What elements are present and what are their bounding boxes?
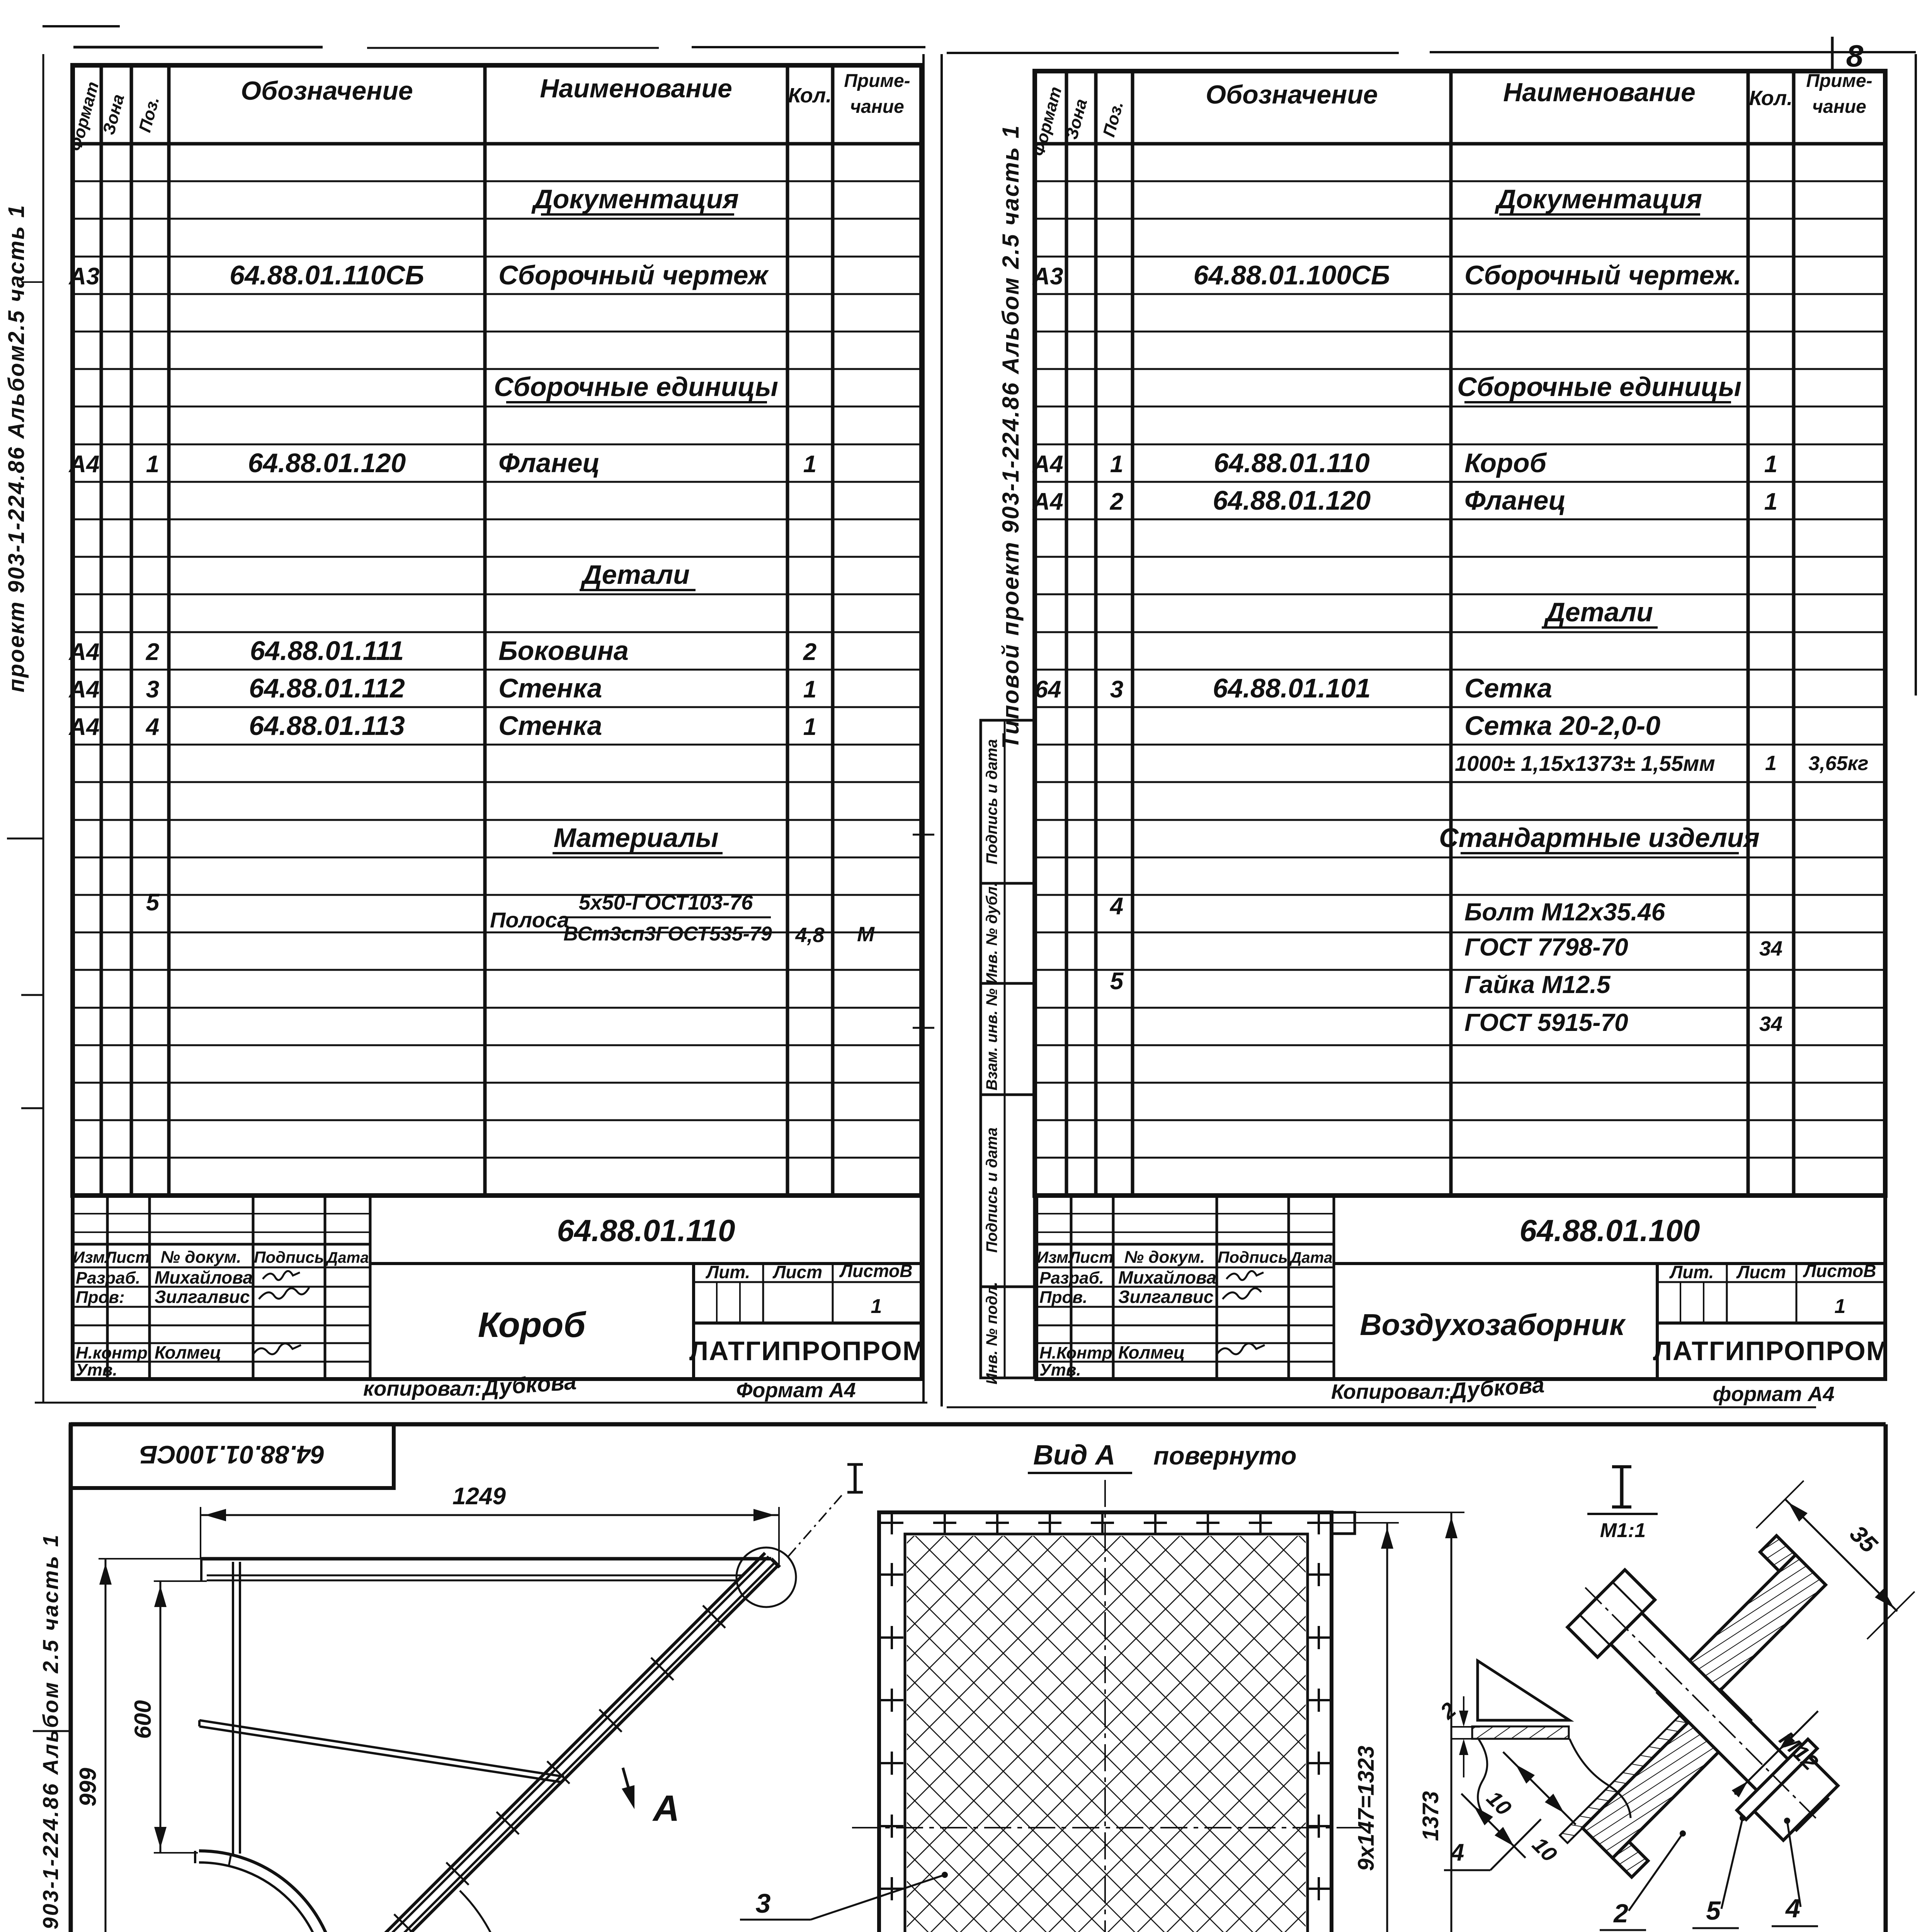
svg-text:Дата: Дата bbox=[326, 1249, 369, 1266]
svg-text:А3: А3 bbox=[1032, 263, 1063, 290]
svg-text:1: 1 bbox=[803, 451, 816, 478]
svg-text:600: 600 bbox=[130, 1700, 156, 1739]
svg-text:1249: 1249 bbox=[452, 1483, 506, 1510]
svg-text:повернуто: повернуто bbox=[1153, 1441, 1297, 1470]
svg-text:Детали: Детали bbox=[1544, 597, 1653, 627]
svg-text:Стенка: Стенка bbox=[498, 673, 602, 703]
svg-text:10: 10 bbox=[1527, 1832, 1562, 1867]
svg-text:Утв.: Утв. bbox=[76, 1361, 117, 1379]
svg-text:Сборочный чертеж: Сборочный чертеж bbox=[498, 260, 769, 290]
svg-text:1: 1 bbox=[871, 1295, 882, 1318]
svg-text:Детали: Детали bbox=[580, 560, 690, 590]
svg-text:64: 64 bbox=[1035, 676, 1061, 703]
svg-text:Сетка 20-2,0-0: Сетка 20-2,0-0 bbox=[1464, 711, 1660, 741]
svg-text:А4: А4 bbox=[1032, 451, 1063, 478]
svg-text:Сборочные единицы: Сборочные единицы bbox=[494, 372, 778, 402]
svg-text:2: 2 bbox=[803, 639, 816, 665]
svg-text:Дубкова: Дубкова bbox=[1447, 1372, 1545, 1404]
svg-text:Фланец: Фланец bbox=[498, 448, 600, 478]
svg-text:64.88.01.100СБ: 64.88.01.100СБ bbox=[139, 1440, 325, 1469]
svg-text:Михайлова: Михайлова bbox=[155, 1267, 253, 1287]
svg-text:А4: А4 bbox=[68, 714, 99, 740]
svg-text:Н.контр: Н.контр bbox=[76, 1344, 148, 1362]
svg-text:9х147=1323: 9х147=1323 bbox=[1354, 1746, 1379, 1871]
svg-text:А3: А3 bbox=[68, 263, 99, 290]
svg-text:Дата: Дата bbox=[1289, 1249, 1333, 1266]
svg-text:Фланец: Фланец bbox=[1464, 485, 1566, 515]
svg-text:64.88.01.100СБ: 64.88.01.100СБ bbox=[1194, 260, 1390, 290]
svg-text:Пров:: Пров: bbox=[76, 1288, 125, 1307]
svg-text:Кол.: Кол. bbox=[788, 84, 832, 107]
svg-text:Взам. инв. №: Взам. инв. № bbox=[983, 988, 1000, 1090]
svg-text:ЛистоВ: ЛистоВ bbox=[839, 1261, 913, 1281]
svg-text:ГОСТ 5915-70: ГОСТ 5915-70 bbox=[1464, 1009, 1628, 1036]
svg-text:Приме-: Приме- bbox=[1806, 71, 1872, 91]
svg-text:Н.Контр: Н.Контр bbox=[1039, 1344, 1112, 1362]
svg-text:Инв. № подл.: Инв. № подл. bbox=[983, 1282, 1000, 1384]
svg-text:1: 1 bbox=[1835, 1295, 1846, 1318]
svg-text:Лит.: Лит. bbox=[706, 1262, 750, 1282]
svg-text:5: 5 bbox=[1706, 1896, 1721, 1925]
svg-text:Стенка: Стенка bbox=[498, 711, 602, 741]
svg-text:Документация: Документация bbox=[531, 184, 739, 214]
svg-text:1373: 1373 bbox=[1418, 1791, 1443, 1841]
svg-text:1: 1 bbox=[1765, 752, 1777, 775]
svg-text:Типовой проект 903-1-224.86: Типовой проект 903-1-224.86 Альбом 2.5 ч… bbox=[38, 1533, 63, 1932]
svg-text:Разраб.: Разраб. bbox=[1039, 1269, 1104, 1287]
svg-text:2: 2 bbox=[1110, 488, 1123, 515]
svg-text:3,65кг: 3,65кг bbox=[1808, 752, 1868, 775]
svg-text:4: 4 bbox=[1785, 1894, 1800, 1923]
svg-text:35: 35 bbox=[1845, 1520, 1883, 1559]
svg-text:Приме-: Приме- bbox=[844, 71, 910, 91]
svg-text:А4: А4 bbox=[68, 676, 99, 703]
svg-text:64.88.01.120: 64.88.01.120 bbox=[248, 448, 406, 478]
svg-text:А4: А4 bbox=[1032, 488, 1063, 515]
svg-text:64.88.01.110: 64.88.01.110 bbox=[557, 1213, 735, 1248]
svg-text:Зилгалвис: Зилгалвис bbox=[1118, 1287, 1213, 1307]
svg-text:5: 5 bbox=[146, 889, 160, 916]
svg-text:Зона: Зона bbox=[99, 92, 128, 137]
svg-text:2: 2 bbox=[1435, 1697, 1461, 1724]
svg-text:Типовой проект 903-1-224.86 А: Типовой проект 903-1-224.86 Альбом 2.5 ч… bbox=[998, 124, 1024, 749]
svg-text:Лит.: Лит. bbox=[1669, 1262, 1714, 1282]
svg-text:Подпись: Подпись bbox=[254, 1248, 324, 1266]
svg-text:64.88.01.113: 64.88.01.113 bbox=[249, 711, 405, 741]
svg-text:1: 1 bbox=[1764, 488, 1777, 515]
svg-text:1: 1 bbox=[1110, 451, 1123, 478]
svg-text:проект 903-1-224.86 Альбом2.5: проект 903-1-224.86 Альбом2.5 часть 1 bbox=[4, 204, 29, 692]
svg-text:2: 2 bbox=[1613, 1899, 1628, 1928]
svg-text:Поз.: Поз. bbox=[135, 95, 163, 134]
svg-text:Обозначение: Обозначение bbox=[241, 76, 413, 105]
svg-text:чание: чание bbox=[1812, 97, 1866, 117]
svg-text:3: 3 bbox=[756, 1888, 771, 1918]
svg-text:999: 999 bbox=[75, 1767, 101, 1806]
svg-text:1: 1 bbox=[1764, 451, 1777, 478]
svg-text:формат А4: формат А4 bbox=[1713, 1383, 1834, 1406]
svg-text:А4: А4 bbox=[68, 451, 99, 478]
svg-text:64.88.01.101: 64.88.01.101 bbox=[1213, 673, 1371, 703]
svg-text:64.88.01.110: 64.88.01.110 bbox=[1214, 448, 1370, 478]
svg-text:64.88.01.100: 64.88.01.100 bbox=[1519, 1213, 1700, 1248]
svg-text:34: 34 bbox=[1759, 1012, 1782, 1036]
svg-text:ЛистоВ: ЛистоВ bbox=[1803, 1261, 1876, 1281]
svg-text:Поз.: Поз. bbox=[1099, 99, 1127, 139]
svg-text:Михайлова: Михайлова bbox=[1118, 1267, 1216, 1287]
svg-text:Наименование: Наименование bbox=[1503, 78, 1696, 107]
svg-text:Копировал:: Копировал: bbox=[1331, 1380, 1451, 1403]
svg-text:8: 8 bbox=[1846, 39, 1864, 73]
svg-text:5х50-ГОСТ103-76: 5х50-ГОСТ103-76 bbox=[579, 891, 753, 914]
svg-text:ЛАТГИПРОПРОМ: ЛАТГИПРОПРОМ bbox=[689, 1336, 926, 1366]
svg-text:3: 3 bbox=[146, 676, 159, 703]
svg-text:Изм: Изм bbox=[1037, 1248, 1068, 1266]
svg-text:Разраб.: Разраб. bbox=[76, 1269, 140, 1287]
svg-text:Колмец: Колмец bbox=[155, 1342, 221, 1362]
svg-text:Подпись: Подпись bbox=[1218, 1248, 1287, 1266]
svg-text:М: М bbox=[857, 923, 875, 946]
svg-text:копировал:: копировал: bbox=[363, 1377, 481, 1400]
svg-text:Боковина: Боковина bbox=[498, 636, 629, 666]
svg-text:№ докум.: № докум. bbox=[1124, 1248, 1205, 1267]
svg-text:Лист: Лист bbox=[1068, 1248, 1113, 1266]
svg-text:Инв. № дубл.: Инв. № дубл. bbox=[983, 882, 1000, 984]
svg-text:Пров.: Пров. bbox=[1039, 1288, 1087, 1307]
svg-text:Сетка: Сетка bbox=[1464, 673, 1552, 703]
svg-text:Дубкова: Дубкова bbox=[480, 1369, 577, 1401]
svg-text:чание: чание bbox=[850, 97, 904, 117]
svg-text:64.88.01.110СБ: 64.88.01.110СБ bbox=[230, 260, 424, 290]
svg-text:Болт М12х35.46: Болт М12х35.46 bbox=[1464, 898, 1665, 926]
svg-text:Вид А: Вид А bbox=[1033, 1440, 1115, 1471]
svg-text:Гайка М12.5: Гайка М12.5 bbox=[1464, 971, 1611, 998]
svg-text:Документация: Документация bbox=[1495, 184, 1702, 214]
svg-text:№ докум.: № докум. bbox=[161, 1248, 241, 1267]
svg-text:64.88.01.111: 64.88.01.111 bbox=[250, 636, 404, 666]
svg-text:1: 1 bbox=[146, 451, 159, 478]
svg-text:3: 3 bbox=[1110, 676, 1123, 703]
svg-text:А: А bbox=[652, 1788, 680, 1829]
svg-text:Воздухозаборник: Воздухозаборник bbox=[1360, 1308, 1626, 1342]
svg-text:4: 4 bbox=[145, 714, 159, 740]
svg-text:4: 4 bbox=[1450, 1839, 1464, 1866]
svg-text:Зилгалвис: Зилгалвис bbox=[155, 1287, 250, 1307]
svg-text:Материалы: Материалы bbox=[554, 823, 719, 853]
svg-text:Лист: Лист bbox=[772, 1262, 822, 1282]
svg-text:64.88.01.120: 64.88.01.120 bbox=[1213, 485, 1371, 515]
svg-text:ВСт3сп3ГОСТ535-79: ВСт3сп3ГОСТ535-79 bbox=[563, 923, 772, 945]
svg-text:64.88.01.112: 64.88.01.112 bbox=[249, 673, 405, 703]
svg-text:Подпись и дата: Подпись и дата bbox=[983, 739, 1000, 864]
svg-text:Подпись и дата: Подпись и дата bbox=[983, 1128, 1000, 1253]
svg-text:М1:1: М1:1 bbox=[1600, 1519, 1646, 1542]
svg-text:Лист: Лист bbox=[104, 1248, 150, 1266]
svg-text:1: 1 bbox=[803, 676, 816, 703]
svg-text:Лист: Лист bbox=[1736, 1262, 1786, 1282]
svg-text:ЛАТГИПРОПРОМ: ЛАТГИПРОПРОМ bbox=[1653, 1336, 1889, 1366]
svg-text:А4: А4 bbox=[68, 639, 99, 665]
svg-text:Кол.: Кол. bbox=[1749, 87, 1793, 110]
svg-text:4,8: 4,8 bbox=[795, 923, 824, 947]
svg-text:Короб: Короб bbox=[478, 1305, 587, 1345]
svg-text:5: 5 bbox=[1110, 968, 1124, 995]
svg-text:2: 2 bbox=[146, 639, 159, 665]
svg-text:34: 34 bbox=[1759, 937, 1782, 960]
svg-text:Изм: Изм bbox=[73, 1248, 105, 1266]
svg-text:Наименование: Наименование bbox=[540, 74, 732, 103]
svg-text:1000± 1,15х1373± 1,55мм: 1000± 1,15х1373± 1,55мм bbox=[1455, 751, 1715, 776]
svg-text:ГОСТ 7798-70: ГОСТ 7798-70 bbox=[1464, 933, 1628, 961]
svg-text:Утв.: Утв. bbox=[1039, 1361, 1081, 1379]
svg-text:Формат А4: Формат А4 bbox=[736, 1379, 855, 1402]
svg-text:Сборочные единицы: Сборочные единицы bbox=[1457, 372, 1742, 402]
svg-text:4: 4 bbox=[1109, 893, 1123, 920]
svg-text:Сборочный чертеж.: Сборочный чертеж. bbox=[1464, 260, 1742, 290]
svg-text:Полоса: Полоса bbox=[490, 908, 569, 932]
svg-text:Колмец: Колмец bbox=[1118, 1342, 1185, 1362]
svg-text:Короб: Короб bbox=[1464, 448, 1547, 478]
svg-text:Обозначение: Обозначение bbox=[1206, 80, 1378, 109]
svg-text:1: 1 bbox=[803, 714, 816, 740]
svg-text:Стандартные изделия: Стандартные изделия bbox=[1439, 823, 1760, 853]
